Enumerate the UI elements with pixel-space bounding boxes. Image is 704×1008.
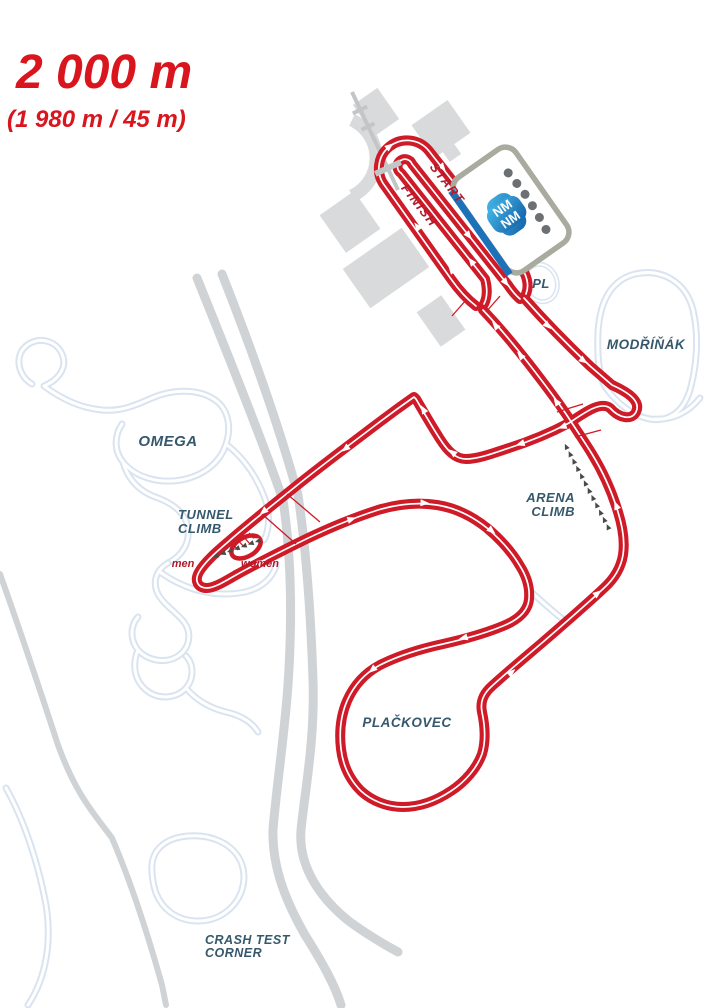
pl-label: PL <box>532 276 550 291</box>
arena-climb-label-line1: ARENA <box>525 490 575 505</box>
road-west <box>0 574 166 1005</box>
modrinak-label: MODŘÍŇÁK <box>607 337 686 352</box>
tunnel-climb-label-line2: CLIMB <box>178 521 222 536</box>
arena-climb-label-line2: CLIMB <box>531 504 575 519</box>
road-main-right <box>222 274 398 952</box>
women-turn-label: women <box>241 558 279 570</box>
crash-test-corner-label-line1: CRASH TEST <box>205 933 291 947</box>
building <box>417 295 466 347</box>
side-track-crash-test-loop <box>6 788 244 1005</box>
tunnel-climb-label-line1: TUNNEL <box>178 507 234 522</box>
course-map: NM NM 2 000 m (1 980 m / 45 m) START FIN… <box>0 0 704 1008</box>
omega-label: OMEGA <box>138 433 197 450</box>
building <box>320 191 381 253</box>
men-turn-label: men <box>172 558 195 570</box>
buildings <box>320 88 471 347</box>
plackovec-label: PLAČKOVEC <box>362 715 451 730</box>
course-map-canvas: NM NM 2 000 m (1 980 m / 45 m) START FIN… <box>0 0 704 1008</box>
course-distance-title: 2 000 m <box>15 46 192 99</box>
course-distance-subtitle: (1 980 m / 45 m) <box>7 106 186 133</box>
crash-test-corner-label-line2: CORNER <box>205 946 262 960</box>
